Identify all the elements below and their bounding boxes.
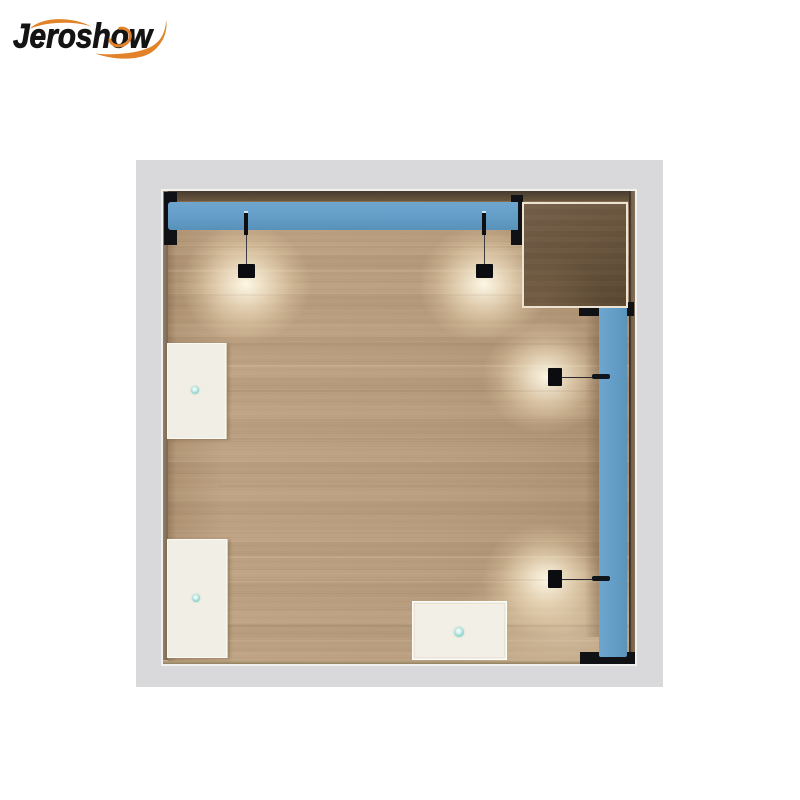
svg-text:Jeroshow: Jeroshow	[13, 18, 154, 56]
